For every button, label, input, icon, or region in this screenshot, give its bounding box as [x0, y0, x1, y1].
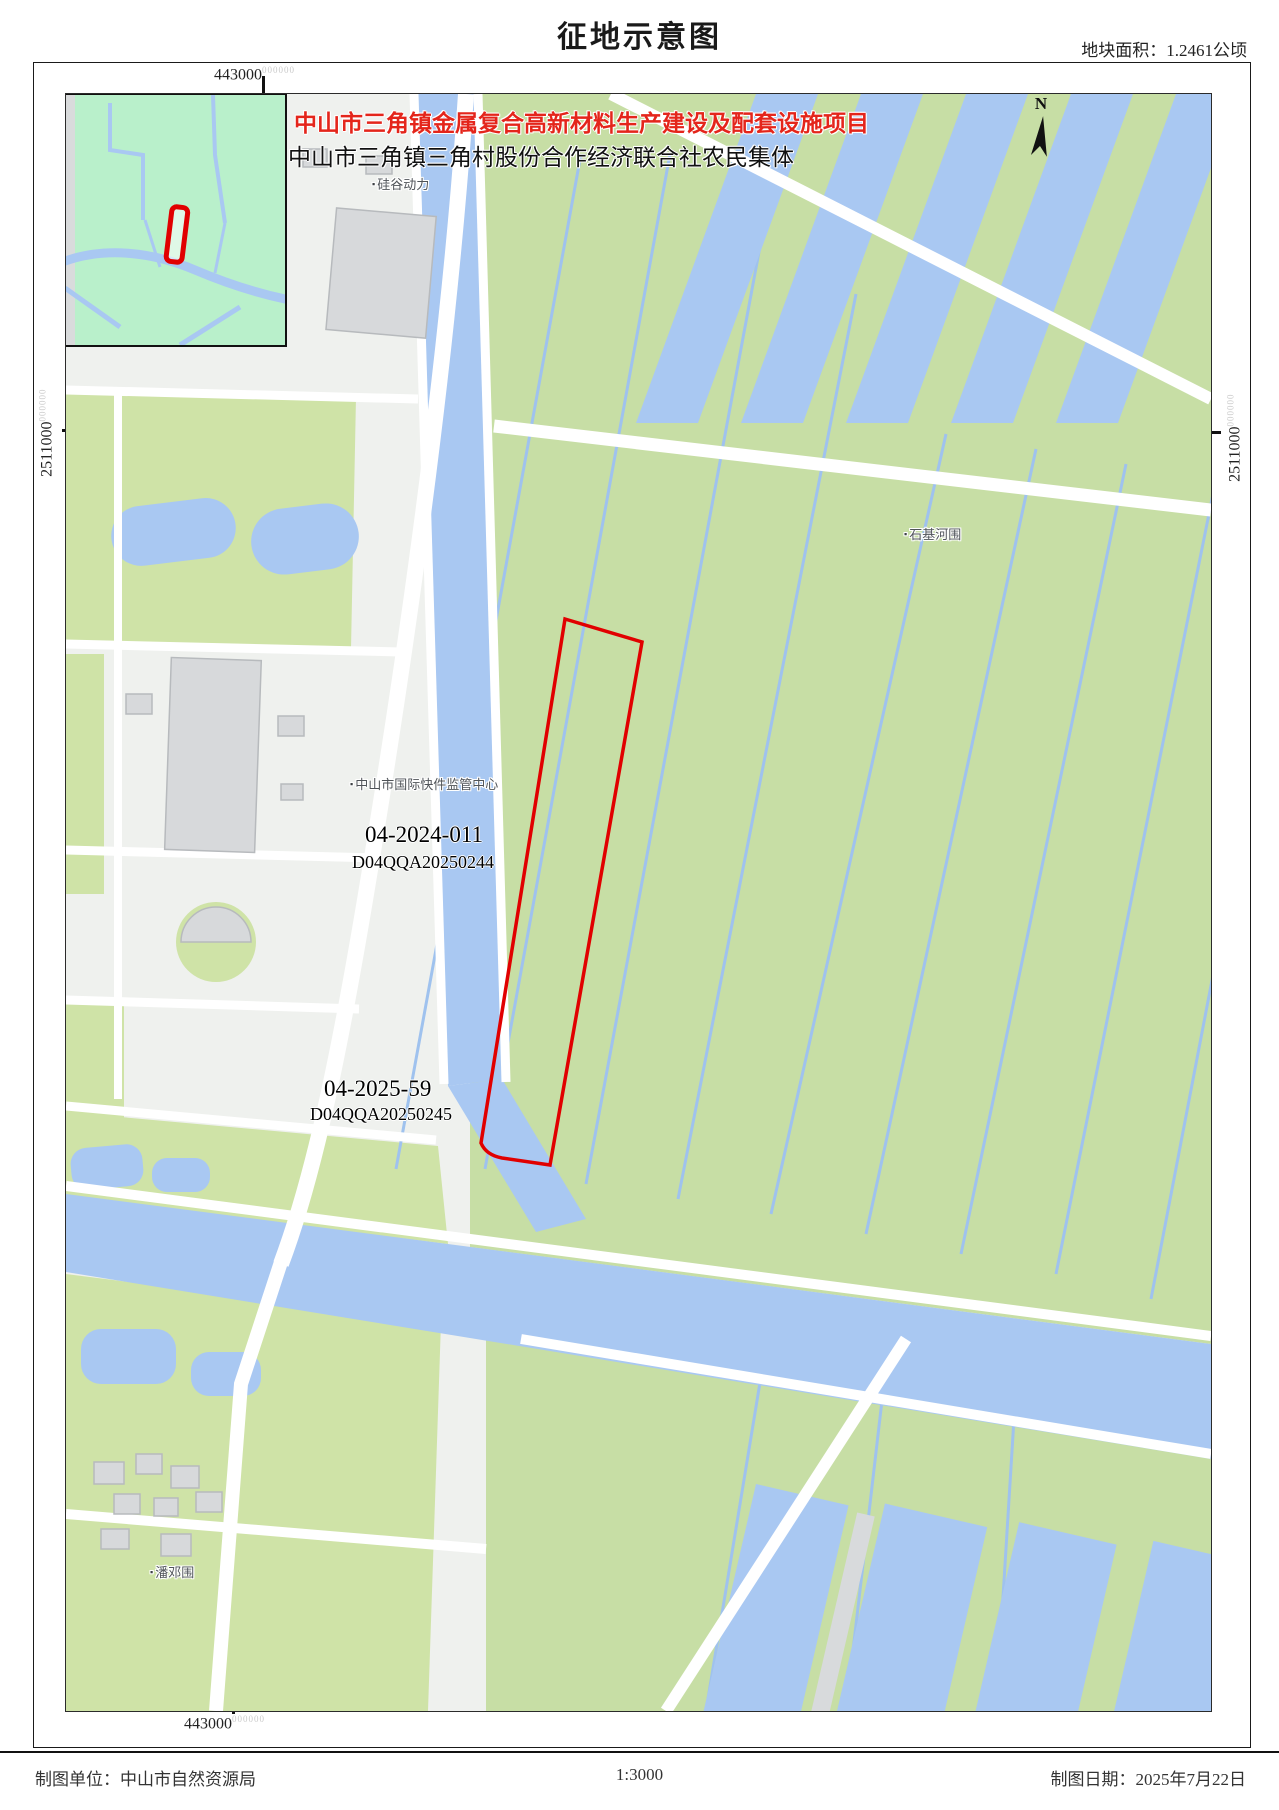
parcel-code-2: D04QQA20250245 — [310, 1104, 452, 1125]
coord-label-left: 2511000000000 — [37, 368, 56, 498]
place-marker-icon: ▪ — [350, 779, 353, 789]
coord-label-bottom: 443000000000 — [184, 1714, 265, 1733]
project-title: 中山市三角镇金属复合高新材料生产建设及配套设施项目 — [294, 104, 869, 138]
parcel-id-1: 04-2024-011 — [365, 822, 483, 848]
place-label-kuaijian-center: ▪中山市国际快件监管中心 — [350, 774, 498, 793]
land-acquisition-sheet: 征地示意图 地块面积：1.2461公顷 443000000000 4430000… — [0, 0, 1279, 1810]
place-label-guigudongli: ▪硅谷动力 — [372, 174, 429, 193]
coord-label-right: 2511000000000 — [1225, 373, 1244, 503]
grid-tick-top — [262, 76, 265, 94]
footer-date: 制图日期：2025年7月22日 — [1051, 1765, 1247, 1790]
plot-area-label: 地块面积：1.2461公顷 — [1081, 36, 1247, 61]
owner-title: 中山市三角镇三角村股份合作经济联合社农民集体 — [288, 138, 794, 172]
coord-fraction: 000000 — [37, 388, 47, 421]
coord-fraction: 000000 — [232, 1714, 265, 1724]
parcel-id-2: 04-2025-59 — [324, 1076, 431, 1102]
coord-fraction: 000000 — [262, 65, 295, 75]
place-marker-icon: ▪ — [904, 529, 907, 539]
place-marker-icon: ▪ — [372, 179, 375, 189]
footer-bar: 制图单位：中山市自然资源局 1:3000 制图日期：2025年7月22日 — [0, 1751, 1279, 1810]
coord-label-top: 443000000000 — [214, 65, 295, 84]
north-arrow-icon — [1019, 112, 1063, 158]
north-arrow: N — [1018, 96, 1064, 156]
coord-fraction: 000000 — [1225, 393, 1235, 426]
parcel-code-1: D04QQA20250244 — [352, 852, 494, 873]
place-marker-icon: ▪ — [150, 1567, 153, 1577]
place-label-shijiheyu: ▪石基河围 — [904, 524, 961, 543]
map-canvas: 中山市三角镇金属复合高新材料生产建设及配套设施项目 中山市三角镇三角村股份合作经… — [65, 93, 1212, 1712]
inset-locator-map — [65, 93, 287, 347]
inset-parcel-marker — [166, 206, 189, 263]
north-label: N — [1018, 96, 1064, 112]
map-margin-frame: 443000000000 443000000000 2511000000000 … — [33, 62, 1251, 1748]
place-label-pandengyu: ▪潘邓围 — [150, 1562, 194, 1581]
inset-art — [65, 95, 285, 345]
